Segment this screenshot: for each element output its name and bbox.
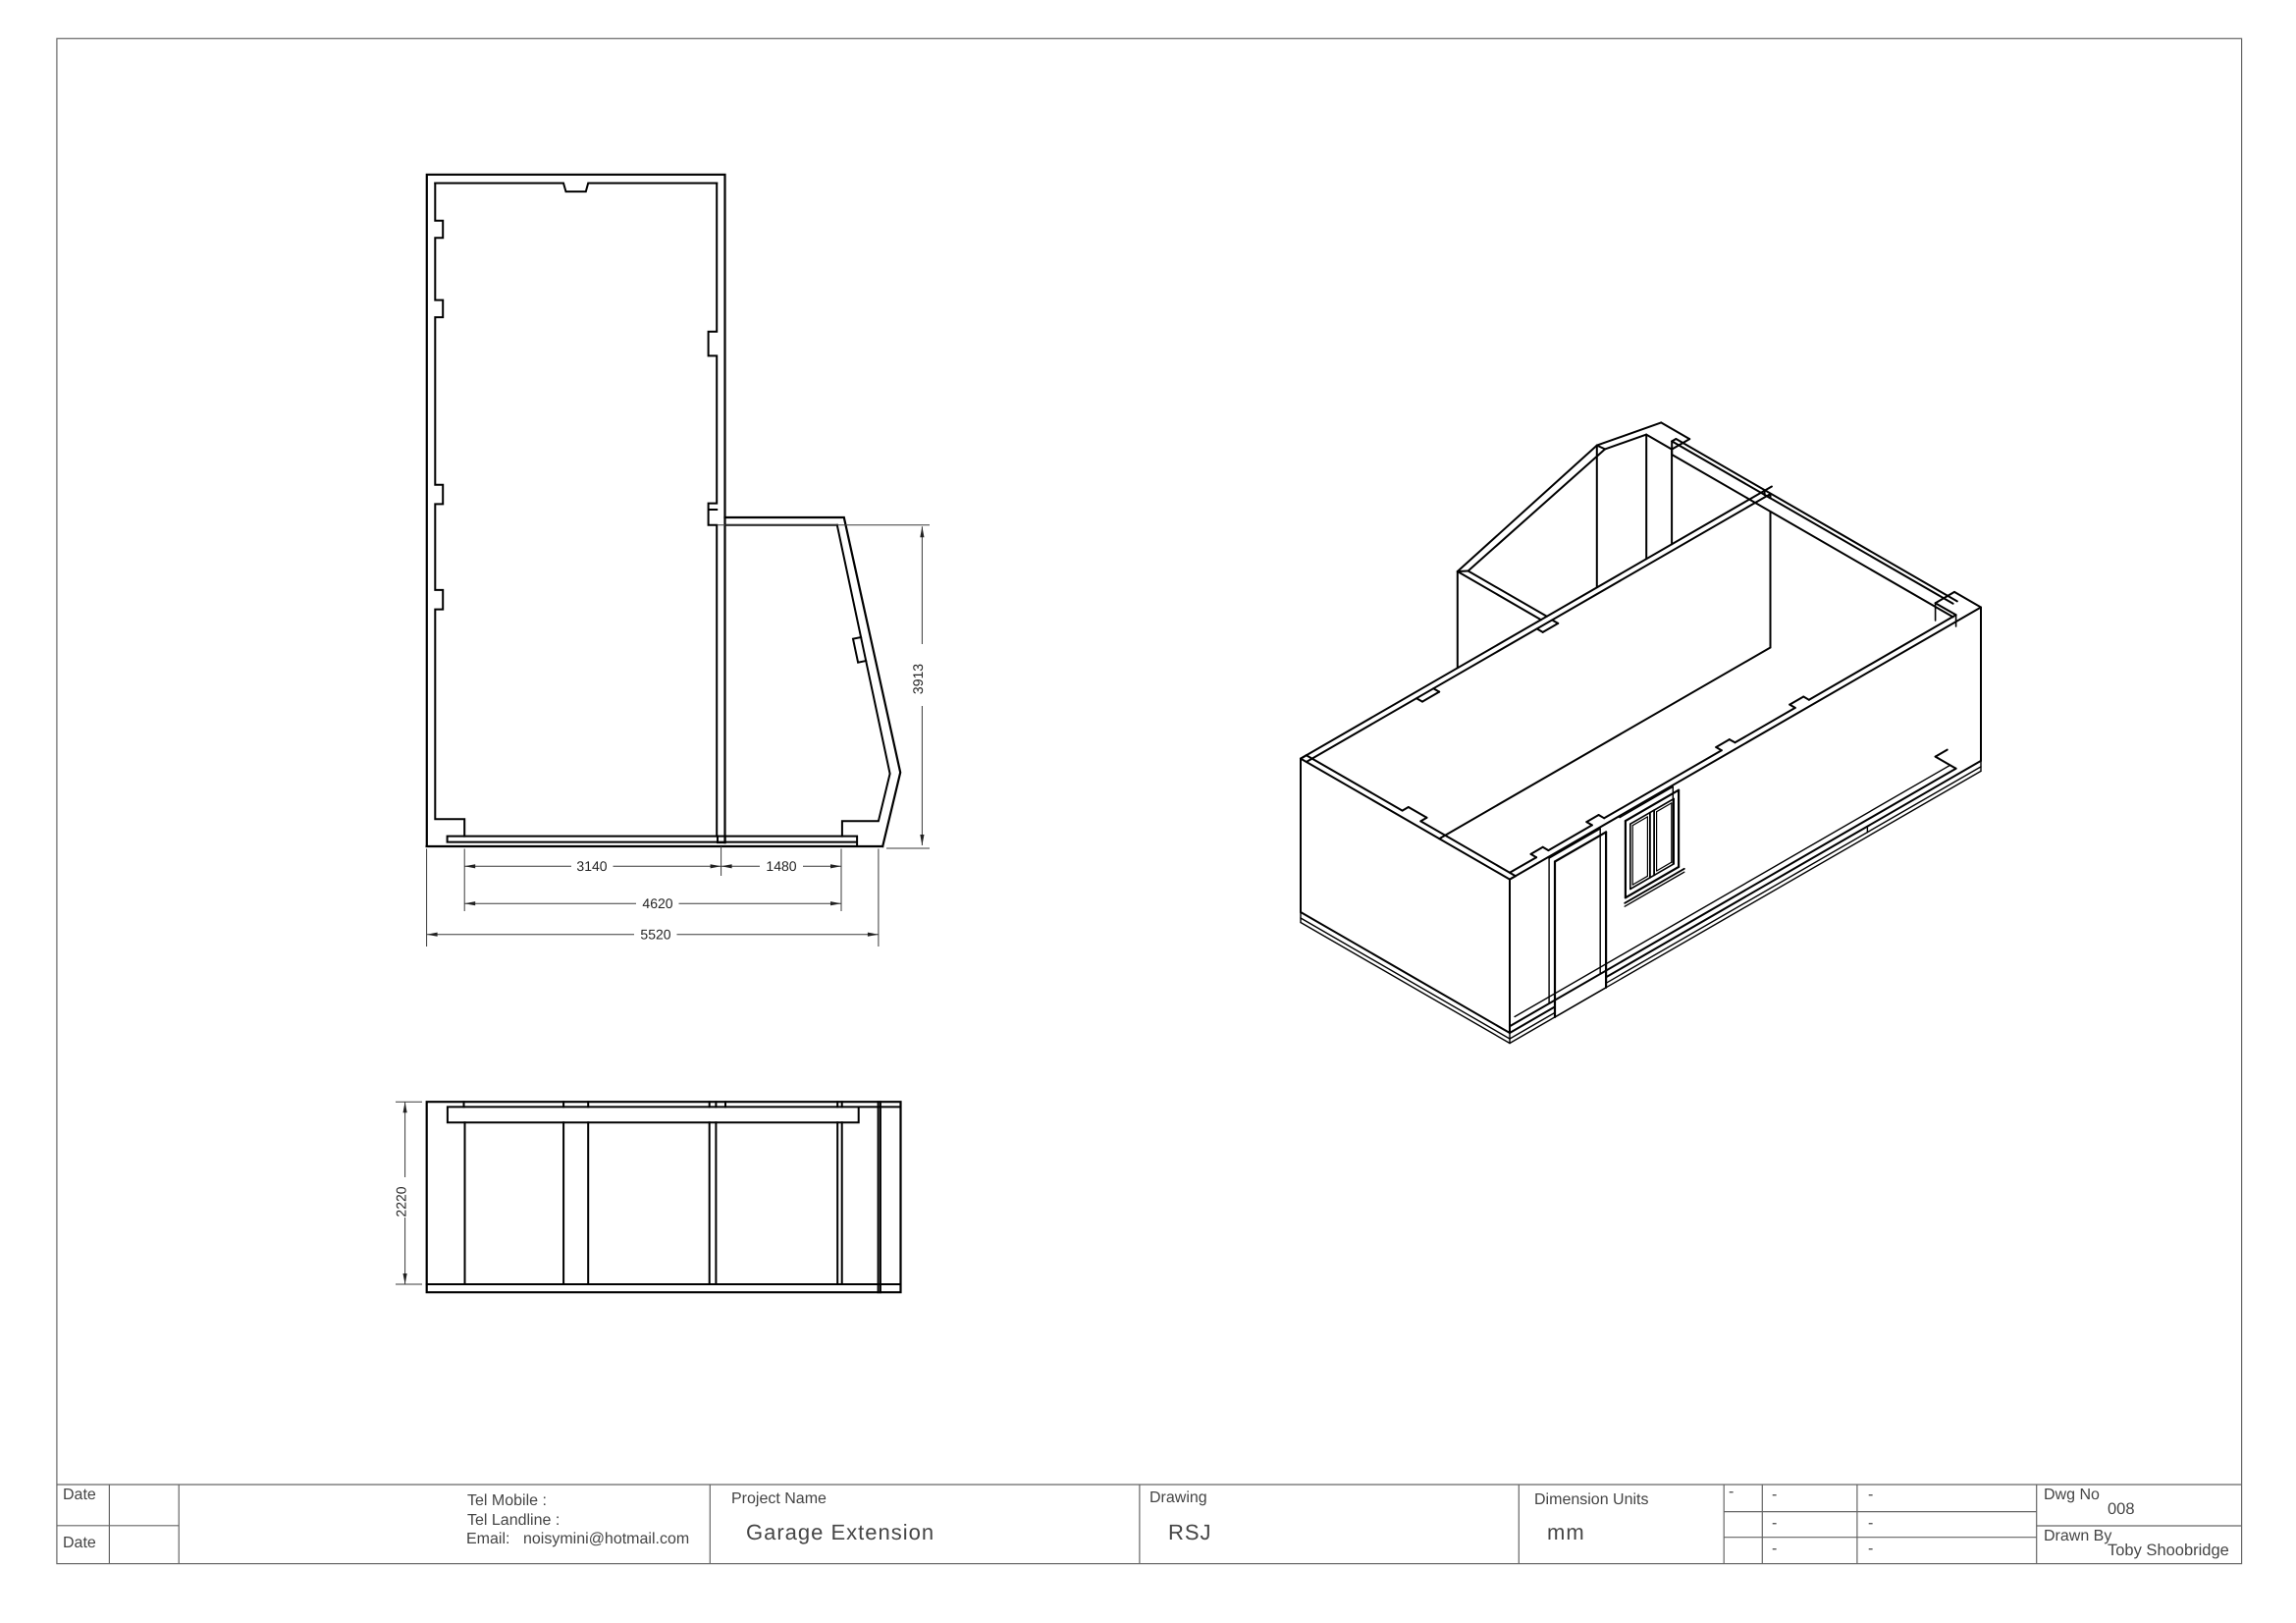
svg-text:mm: mm [1547,1520,1585,1544]
svg-text:Toby Shoobridge: Toby Shoobridge [2108,1542,2229,1559]
svg-text:-: - [1868,1541,1873,1557]
svg-text:Drawing: Drawing [1149,1489,1207,1506]
svg-text:Date: Date [63,1487,96,1503]
svg-text:Email:: Email: [466,1531,509,1547]
svg-text:4620: 4620 [642,895,672,911]
svg-text:Drawn By: Drawn By [2044,1528,2111,1544]
svg-text:Tel Mobile :: Tel Mobile : [467,1492,547,1509]
svg-text:-: - [1772,1515,1777,1532]
svg-text:-: - [1729,1484,1734,1500]
svg-text:RSJ: RSJ [1168,1520,1212,1544]
svg-text:5520: 5520 [640,927,670,943]
svg-text:008: 008 [2108,1500,2135,1518]
svg-text:-: - [1772,1541,1777,1557]
svg-text:3140: 3140 [576,858,607,874]
svg-text:-: - [1868,1515,1873,1532]
svg-text:-: - [1772,1487,1777,1503]
svg-text:Dwg No: Dwg No [2044,1487,2100,1503]
svg-text:3913: 3913 [910,664,926,694]
svg-text:Date: Date [63,1535,96,1551]
svg-text:1480: 1480 [766,858,796,874]
svg-text:Project Name: Project Name [731,1490,827,1507]
svg-text:Dimension Units: Dimension Units [1534,1491,1648,1508]
svg-text:2220: 2220 [394,1186,409,1217]
svg-text:Tel Landline :: Tel Landline : [467,1512,560,1529]
svg-text:noisymini@hotmail.com: noisymini@hotmail.com [523,1531,689,1547]
svg-text:-: - [1868,1487,1873,1503]
svg-text:Garage Extension: Garage Extension [746,1520,934,1544]
